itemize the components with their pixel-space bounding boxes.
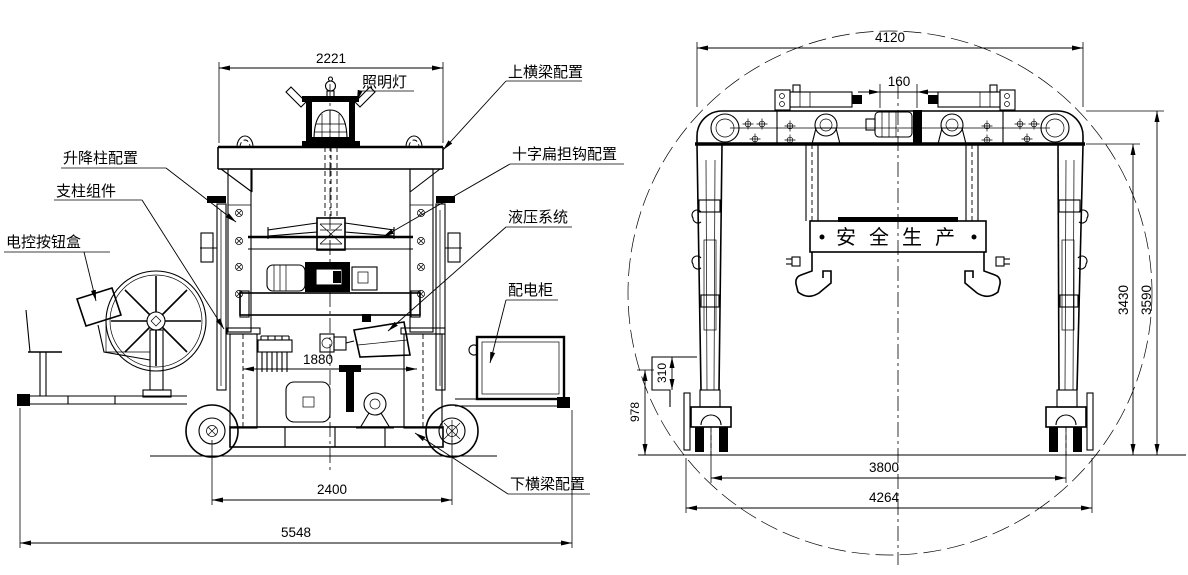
platform-arm: [17, 394, 187, 406]
lower-beam: [230, 427, 443, 447]
rail-hook-right: [965, 252, 1010, 296]
dim-beam-width: 4120: [875, 30, 905, 45]
distribution-cabinet: [455, 337, 570, 408]
hydraulic-system: [320, 314, 410, 357]
front-view: 2221 1880 2400 5548 照明灯 上横梁配置 升降柱配置 支柱组件…: [4, 51, 624, 548]
side-dimensions: 4120 160 3430 3590 310 978 3800 4264: [628, 30, 1164, 513]
dim-overall-length: 5548: [281, 525, 311, 540]
dim-foot-height: 978: [628, 402, 642, 422]
label-lift-column: 升降柱配置: [63, 150, 138, 167]
banner-text: 安全生产: [836, 226, 968, 249]
hanger-bars: [806, 144, 978, 221]
dim-center-offset: 160: [888, 74, 911, 89]
valve-manifold: [258, 336, 292, 372]
label-upper-beam: 上横梁配置: [508, 64, 583, 81]
operator-stand: [26, 310, 62, 396]
dim-column-span: 1880: [303, 352, 333, 367]
drawing-canvas: 2221 1880 2400 5548 照明灯 上横梁配置 升降柱配置 支柱组件…: [0, 0, 1188, 575]
support-column-left: [200, 196, 226, 390]
hoist-unit: [267, 262, 377, 292]
support-column-right: [436, 196, 462, 390]
lamp-dome: [314, 110, 347, 140]
cable-reel: [106, 271, 206, 397]
side-wheel-right: [1046, 390, 1093, 455]
dim-wheel-base: 2400: [317, 482, 347, 497]
lift-column-right: [410, 169, 433, 332]
dim-rail-span: 3800: [869, 460, 899, 475]
label-lower-beam: 下横梁配置: [510, 476, 585, 493]
label-hydraulic: 液压系统: [508, 209, 568, 226]
label-cross-hook: 十字扁担钩配置: [512, 146, 617, 163]
label-control-box: 电控按钮盒: [6, 234, 81, 251]
side-view: 安全生产: [628, 30, 1186, 565]
dim-overall-height: 3590: [1139, 285, 1154, 315]
front-dimensions: 2221 1880 2400 5548: [20, 51, 572, 548]
dim-top-width: 2221: [316, 51, 346, 66]
cross-pole: [268, 218, 394, 250]
rail-hook-left: [786, 252, 831, 296]
base-block-left: [227, 328, 260, 428]
hoist-ropes: [325, 147, 337, 218]
label-cabinet: 配电柜: [508, 282, 553, 299]
technical-drawing: 2221 1880 2400 5548 照明灯 上横梁配置 升降柱配置 支柱组件…: [0, 0, 1188, 575]
travel-drive: [286, 365, 394, 428]
dim-inner-height: 3430: [1116, 285, 1131, 315]
beam-motor: [866, 110, 922, 143]
label-lamp: 照明灯: [362, 74, 407, 91]
label-support-column: 支柱组件: [56, 183, 116, 200]
dim-step-height: 310: [655, 363, 669, 383]
gantry-leg-left: [692, 145, 722, 390]
gantry-beam: [695, 111, 1085, 146]
dim-overall-width: 4264: [869, 490, 900, 505]
gantry-leg-right: [1058, 145, 1088, 390]
control-box: [77, 288, 150, 360]
